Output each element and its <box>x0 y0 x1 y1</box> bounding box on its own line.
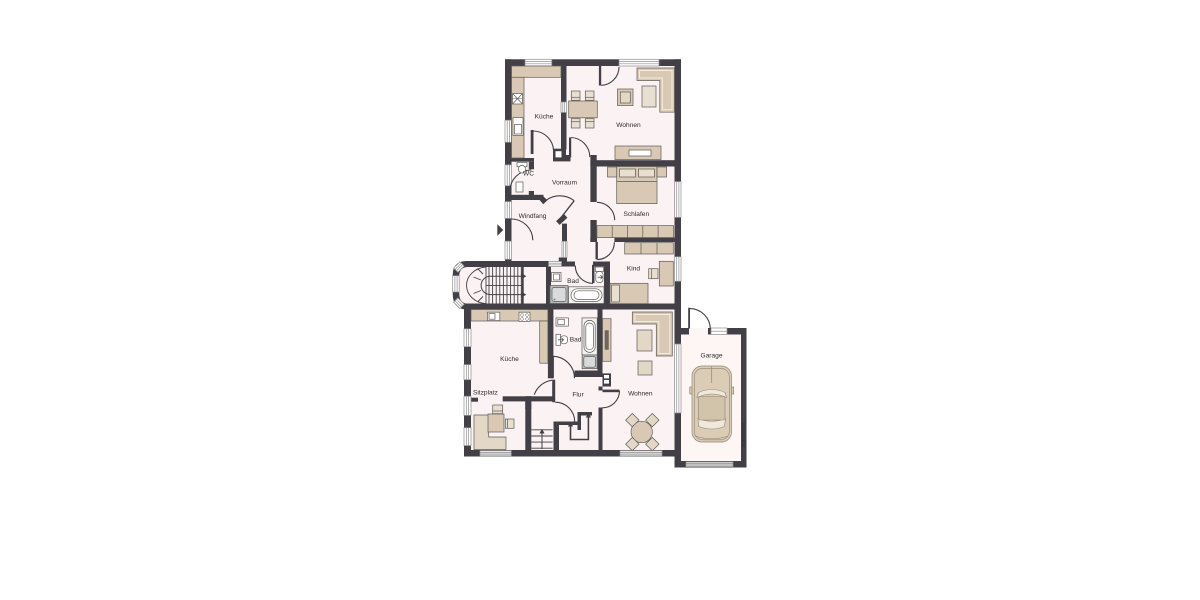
svg-text:Schlafen: Schlafen <box>623 211 649 218</box>
svg-text:Wohnen: Wohnen <box>616 122 641 129</box>
svg-text:Kind: Kind <box>627 266 641 273</box>
svg-text:Flur: Flur <box>572 392 584 399</box>
svg-text:Küche: Küche <box>535 114 554 121</box>
svg-text:Garage: Garage <box>701 353 723 360</box>
svg-text:Küche: Küche <box>500 356 519 363</box>
svg-text:WC: WC <box>523 171 534 178</box>
svg-text:Mustergrundriss: Mustergrundriss <box>742 422 746 447</box>
svg-text:Bad: Bad <box>570 337 582 344</box>
svg-text:Windfang: Windfang <box>519 213 547 220</box>
svg-text:Wohnen: Wohnen <box>628 391 653 398</box>
svg-text:Bad: Bad <box>567 278 579 285</box>
svg-text:Sitzplatz: Sitzplatz <box>473 390 498 397</box>
svg-text:Vorraum: Vorraum <box>552 180 577 187</box>
